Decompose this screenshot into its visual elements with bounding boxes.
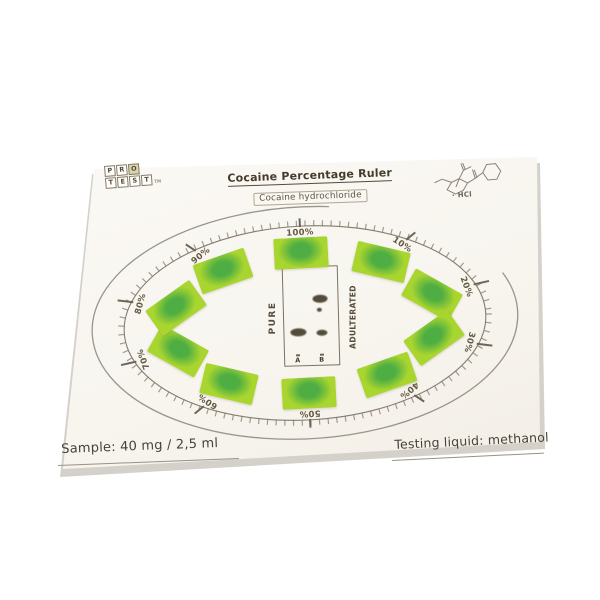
percent-label: 50% [299,407,321,418]
color-swatch-50pct [281,376,337,410]
percent-label: 100% [286,227,314,238]
color-swatch-100pct [274,236,330,270]
color-swatch-70pct [147,325,209,379]
color-swatch-80pct [145,280,207,337]
color-swatch-20pct [401,268,463,322]
color-swatch-30pct [403,310,465,367]
dial-overlay: 100%10%20%30%40%50%60%70%80%90% [0,0,600,600]
